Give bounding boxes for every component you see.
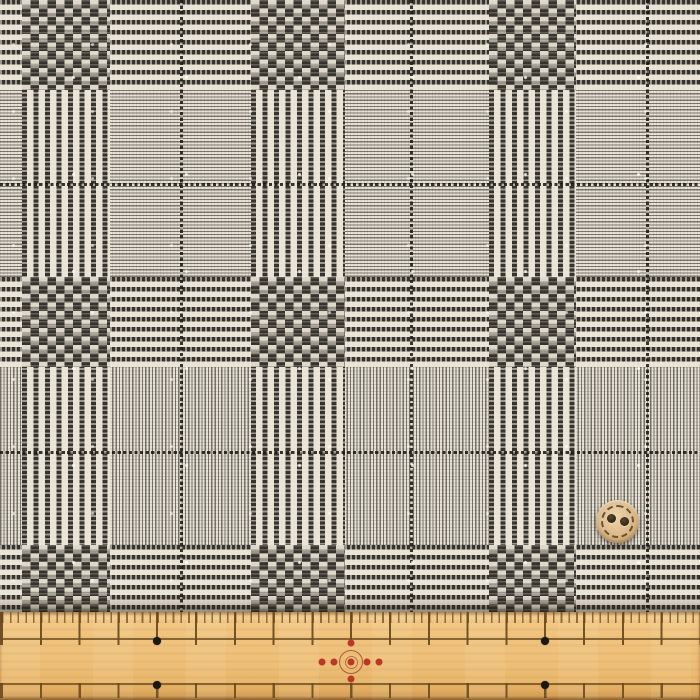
button-hole (607, 514, 616, 523)
ruler-dot-marker (541, 681, 549, 689)
compass-dot-east (364, 659, 371, 666)
product-photo (0, 0, 700, 700)
compass-center-dot (348, 659, 355, 666)
houndstooth-block (22, 0, 110, 90)
button-hole (620, 517, 629, 526)
ruler-dot-marker (153, 637, 161, 645)
compass-dot-south (348, 676, 355, 683)
houndstooth-block (22, 277, 110, 367)
houndstooth-block (251, 277, 345, 367)
compass-dot-north (348, 640, 355, 647)
houndstooth-block (489, 277, 576, 367)
overcheck-line-vertical (646, 0, 649, 612)
wooden-button (596, 500, 639, 543)
ruler-dot-marker (153, 681, 161, 689)
overcheck-line-vertical (180, 0, 183, 612)
ruler-dot-marker (541, 637, 549, 645)
compass-dot-east-outer (376, 659, 383, 666)
houndstooth-block (251, 0, 345, 90)
fabric-swatch (0, 0, 700, 612)
fabric-edge-shadow (0, 596, 700, 612)
overcheck-line-horizontal (0, 183, 700, 186)
houndstooth-block (489, 0, 576, 90)
button-stitch-ring (601, 505, 634, 538)
ruler (0, 612, 700, 700)
overcheck-line-vertical (410, 0, 413, 612)
compass-dot-west-outer (319, 659, 326, 666)
compass-dot-west (331, 659, 338, 666)
overcheck-line-horizontal (0, 451, 700, 454)
ruler-bottom-edge-shade (0, 696, 700, 700)
